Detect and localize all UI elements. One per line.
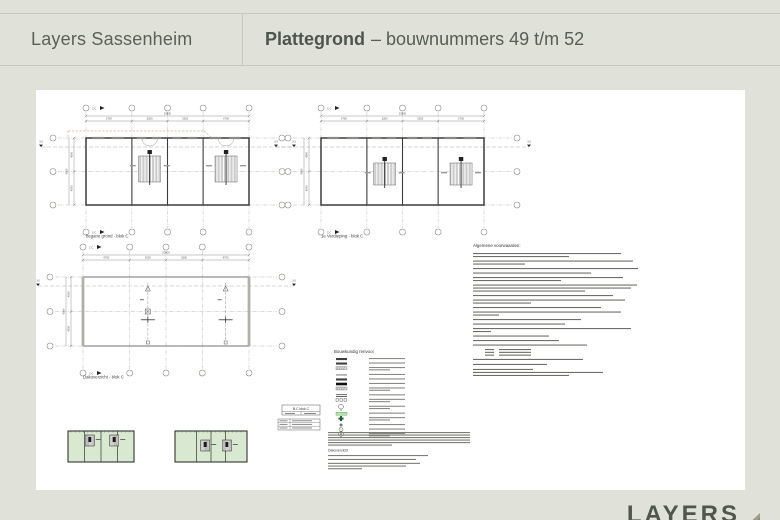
svg-text:Bouwkundig renvooi: Bouwkundig renvooi [334, 349, 374, 354]
svg-text:1e Verdieping - blok C: 1e Verdieping - blok C [321, 234, 363, 239]
svg-text:9000: 9000 [62, 308, 66, 314]
svg-text:5200: 5200 [181, 256, 187, 260]
svg-text:6700: 6700 [223, 117, 229, 121]
logo-triangle-icon [747, 512, 760, 520]
svg-text:C-C: C-C [89, 246, 94, 249]
page-title: Plattegrond – bouwnummers 49 t/m 52 [243, 29, 584, 50]
drawing-sheet: 6700520052006700238004500450090003-33-3C… [36, 90, 745, 490]
plan-dakoverzicht: 6700520052006700238004500450090003-33-3C… [36, 244, 296, 380]
svg-text:5200: 5200 [147, 117, 153, 121]
svg-text:begane grond - blok C: begane grond - blok C [86, 234, 129, 239]
svg-text:4500: 4500 [67, 325, 71, 331]
svg-text:4500: 4500 [70, 185, 74, 191]
svg-text:4500: 4500 [67, 291, 71, 297]
svg-text:23800: 23800 [162, 251, 170, 255]
svg-text:23800: 23800 [399, 112, 407, 116]
svg-text:5200: 5200 [182, 117, 188, 121]
page-title-rest: – bouwnummers 49 t/m 52 [371, 29, 584, 50]
svg-text:3-3: 3-3 [292, 280, 296, 283]
plan-begane-grond: 6700520052006700238004500450090003-33-3C… [39, 105, 296, 239]
svg-text:9000: 9000 [300, 168, 304, 174]
legend-bouwkundig-renvooi: Bouwkundig renvooiDakoverzicht [328, 349, 470, 469]
svg-text:Algemene voorwaarden:: Algemene voorwaarden: [473, 243, 521, 248]
svg-text:Dakoverzicht - blok C: Dakoverzicht - blok C [83, 375, 124, 380]
logo-text: LAYERS [627, 503, 740, 520]
svg-text:5200: 5200 [417, 117, 423, 121]
svg-text:4500: 4500 [305, 185, 309, 191]
svg-text:C-C: C-C [327, 107, 332, 110]
architectural-drawing: 6700520052006700238004500450090003-33-3C… [36, 90, 745, 490]
svg-text:6700: 6700 [106, 117, 112, 121]
svg-text:6700: 6700 [103, 256, 109, 260]
page-title-bold: Plattegrond [265, 29, 365, 50]
svg-text:4500: 4500 [70, 151, 74, 157]
svg-text:6700: 6700 [458, 117, 464, 121]
page: Layers Sassenheim Plattegrond – bouwnumm… [0, 0, 780, 520]
conditions-text-algemene-voorwaarden: Algemene voorwaarden: [473, 243, 638, 376]
svg-text:C-C: C-C [92, 107, 97, 110]
svg-text:Dakoverzicht: Dakoverzicht [328, 449, 348, 453]
svg-text:3-3: 3-3 [292, 141, 296, 144]
svg-text:3-3: 3-3 [274, 141, 278, 144]
svg-text:5200: 5200 [145, 256, 151, 260]
svg-text:6700: 6700 [223, 256, 229, 260]
svg-text:3-3: 3-3 [36, 280, 40, 283]
svg-text:6700: 6700 [341, 117, 347, 121]
plan-1e-verdieping: 6700520052006700238004500450090003-33-3C… [274, 105, 531, 239]
brand-name: Layers Sassenheim [0, 14, 243, 65]
svg-text:23800: 23800 [164, 112, 172, 116]
svg-text:3-3: 3-3 [527, 141, 531, 144]
title-table: B.C blok C [278, 405, 320, 430]
page-header: Layers Sassenheim Plattegrond – bouwnumm… [0, 13, 780, 66]
thumbnail-plan-first [175, 431, 247, 462]
layers-logo: LAYERS [627, 503, 760, 520]
svg-text:9000: 9000 [65, 168, 69, 174]
svg-text:3-3: 3-3 [39, 141, 43, 144]
svg-text:4500: 4500 [305, 151, 309, 157]
svg-text:B.C blok C: B.C blok C [293, 407, 310, 411]
thumbnail-plan-ground [68, 431, 134, 462]
svg-text:5200: 5200 [382, 117, 388, 121]
